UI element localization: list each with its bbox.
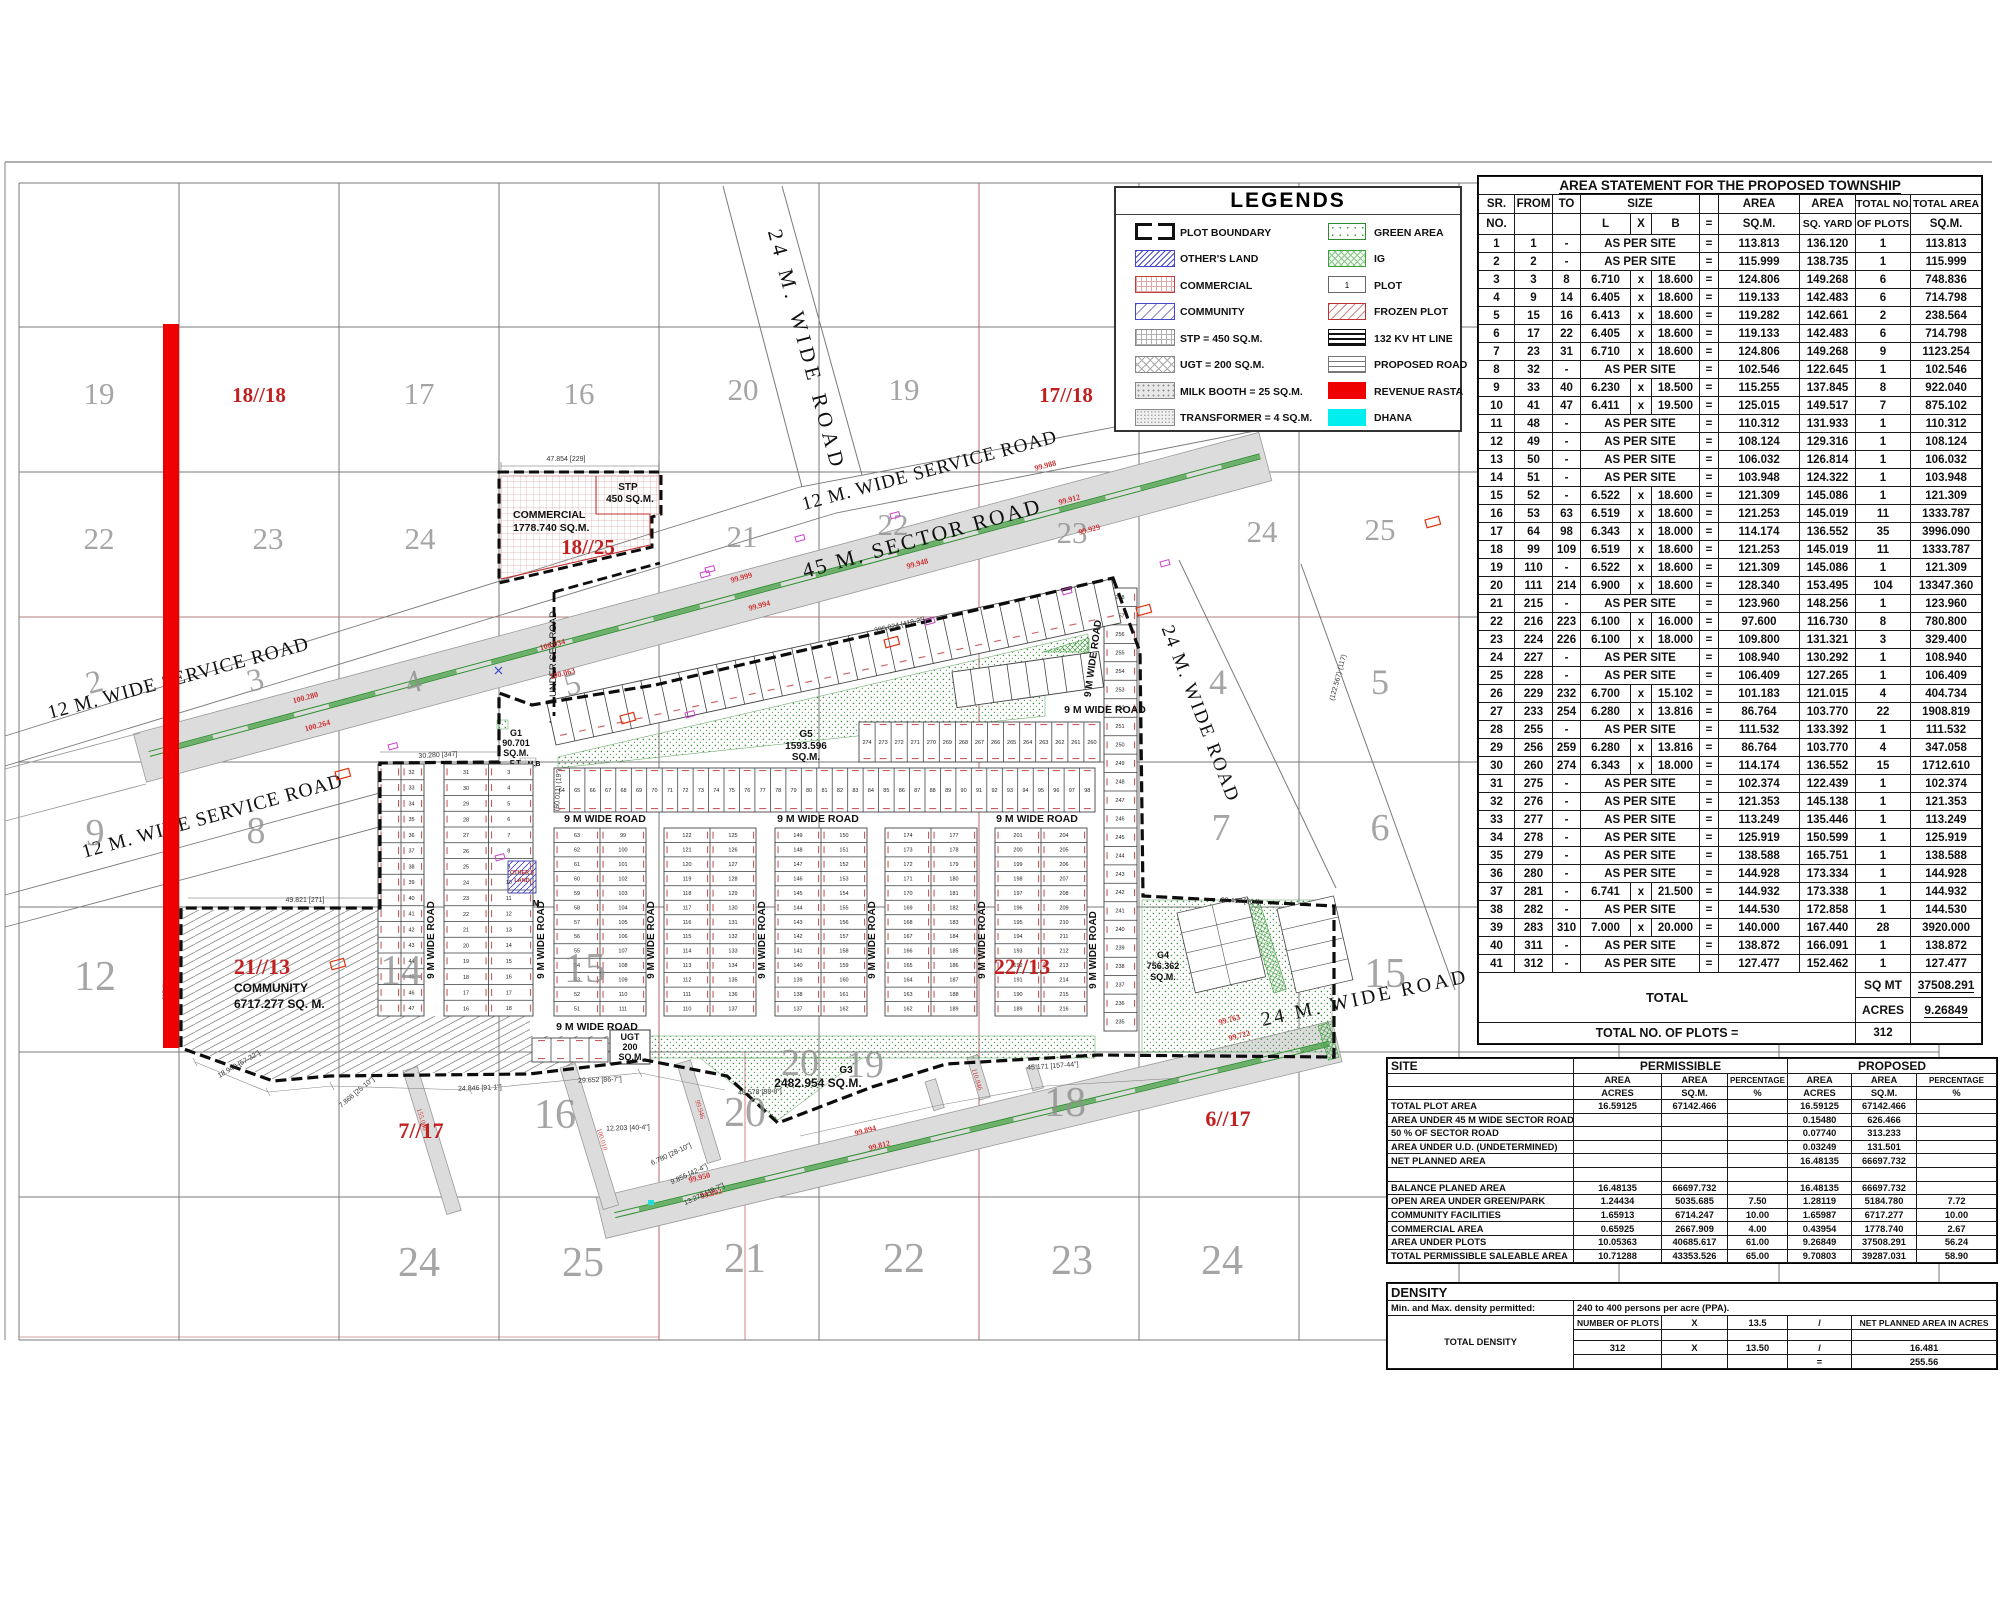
svg-text:87: 87 xyxy=(914,788,920,794)
svg-text:147: 147 xyxy=(793,862,802,868)
svg-text:18: 18 xyxy=(463,975,469,981)
svg-text:138: 138 xyxy=(793,992,802,998)
svg-text:204: 204 xyxy=(1059,833,1068,839)
svg-text:9 M WIDE ROAD: 9 M WIDE ROAD xyxy=(757,901,768,979)
svg-text:247: 247 xyxy=(1115,798,1124,804)
svg-text:214: 214 xyxy=(1059,978,1068,984)
svg-text:107: 107 xyxy=(618,949,627,955)
svg-text:37: 37 xyxy=(408,849,414,855)
svg-text:20: 20 xyxy=(728,372,759,407)
svg-text:58: 58 xyxy=(574,905,580,911)
svg-text:198: 198 xyxy=(1013,876,1022,882)
svg-text:173: 173 xyxy=(903,847,912,853)
svg-text:24: 24 xyxy=(1201,1238,1243,1284)
svg-text:196: 196 xyxy=(1013,905,1022,911)
svg-text:22: 22 xyxy=(84,521,115,556)
svg-text:6.780 [28-10"]: 6.780 [28-10"] xyxy=(650,1142,693,1167)
svg-text:63: 63 xyxy=(574,833,580,839)
svg-text:35: 35 xyxy=(408,817,414,823)
svg-text:139: 139 xyxy=(793,978,802,984)
svg-text:21: 21 xyxy=(724,1236,766,1282)
svg-text:209: 209 xyxy=(1059,905,1068,911)
svg-text:266: 266 xyxy=(991,740,1000,746)
svg-text:261: 261 xyxy=(1071,740,1080,746)
svg-text:12 M. WIDE SERVICE ROAD: 12 M. WIDE SERVICE ROAD xyxy=(80,771,346,863)
svg-text:110: 110 xyxy=(683,1007,692,1013)
svg-text:132: 132 xyxy=(728,934,737,940)
svg-text:6717.277 SQ. M.: 6717.277 SQ. M. xyxy=(234,997,325,1011)
svg-text:62: 62 xyxy=(574,847,580,853)
svg-text:66: 66 xyxy=(590,788,596,794)
svg-text:9 M WIDE ROAD: 9 M WIDE ROAD xyxy=(646,901,657,979)
svg-text:29.652 [86-7"]: 29.652 [86-7"] xyxy=(578,1076,622,1085)
svg-text:69: 69 xyxy=(636,788,642,794)
svg-text:22: 22 xyxy=(463,912,469,918)
svg-text:14: 14 xyxy=(380,948,422,994)
svg-text:9 M WIDE ROAD: 9 M WIDE ROAD xyxy=(867,901,878,979)
svg-text:272: 272 xyxy=(895,740,904,746)
svg-text:270: 270 xyxy=(927,740,936,746)
svg-text:38: 38 xyxy=(408,864,414,870)
svg-text:11: 11 xyxy=(506,896,512,902)
svg-text:249: 249 xyxy=(1115,761,1124,767)
svg-text:115: 115 xyxy=(683,934,692,940)
svg-text:SQ.M.: SQ.M. xyxy=(1150,972,1176,982)
svg-text:187: 187 xyxy=(949,978,958,984)
svg-text:153: 153 xyxy=(839,876,848,882)
svg-text:111: 111 xyxy=(619,1007,627,1013)
svg-text:146: 146 xyxy=(793,876,802,882)
svg-text:UGT: UGT xyxy=(621,1032,641,1042)
svg-text:29: 29 xyxy=(463,802,469,808)
svg-text:126: 126 xyxy=(728,847,737,853)
svg-text:1593.596: 1593.596 xyxy=(785,741,827,752)
svg-text:156: 156 xyxy=(839,920,848,926)
svg-text:95: 95 xyxy=(1038,788,1044,794)
svg-text:COMMUNITY: COMMUNITY xyxy=(234,981,308,995)
svg-text:SQ.M.: SQ.M. xyxy=(792,752,821,763)
svg-text:189: 189 xyxy=(1013,1007,1022,1013)
svg-text:120: 120 xyxy=(682,862,691,868)
svg-text:168: 168 xyxy=(903,920,912,926)
svg-text:183: 183 xyxy=(949,920,958,926)
svg-text:19: 19 xyxy=(846,1044,884,1086)
svg-text:248: 248 xyxy=(1115,780,1124,786)
svg-text:8: 8 xyxy=(247,810,266,852)
svg-text:9 M WIDE ROAD: 9 M WIDE ROAD xyxy=(777,813,859,825)
svg-text:136: 136 xyxy=(728,992,737,998)
svg-text:185: 185 xyxy=(949,949,958,955)
svg-text:6: 6 xyxy=(1371,807,1390,849)
svg-text:78: 78 xyxy=(775,788,781,794)
svg-text:1778.740 SQ.M.: 1778.740 SQ.M. xyxy=(513,522,590,534)
svg-text:144: 144 xyxy=(793,905,802,911)
svg-text:180: 180 xyxy=(949,876,958,882)
svg-text:51: 51 xyxy=(574,1007,580,1013)
svg-text:110: 110 xyxy=(619,992,628,998)
svg-text:74: 74 xyxy=(713,788,719,794)
svg-text:47.854 [229]: 47.854 [229] xyxy=(547,456,586,463)
svg-text:65: 65 xyxy=(574,788,580,794)
svg-text:17: 17 xyxy=(463,991,469,997)
svg-text:206: 206 xyxy=(1059,862,1068,868)
svg-text:85: 85 xyxy=(883,788,889,794)
svg-text:171: 171 xyxy=(903,876,912,882)
svg-text:98: 98 xyxy=(1084,788,1090,794)
svg-text:STP: STP xyxy=(618,482,638,493)
svg-text:268: 268 xyxy=(959,740,968,746)
svg-text:12.203 [40-4"]: 12.203 [40-4"] xyxy=(606,1124,650,1133)
svg-text:20: 20 xyxy=(724,1090,766,1136)
svg-text:141: 141 xyxy=(793,949,802,955)
svg-text:274: 274 xyxy=(862,740,871,746)
svg-text:162: 162 xyxy=(903,1007,912,1013)
svg-text:15: 15 xyxy=(506,959,512,965)
svg-text:152: 152 xyxy=(839,862,848,868)
svg-text:90.701: 90.701 xyxy=(502,738,530,748)
svg-text:24: 24 xyxy=(1247,514,1279,549)
svg-text:18//18: 18//18 xyxy=(232,383,286,407)
svg-text:4: 4 xyxy=(507,786,510,792)
svg-text:102: 102 xyxy=(618,876,627,882)
svg-text:129: 129 xyxy=(728,891,737,897)
svg-text:167: 167 xyxy=(903,934,912,940)
svg-text:6: 6 xyxy=(507,817,510,823)
svg-text:47: 47 xyxy=(408,1006,414,1012)
svg-text:269: 269 xyxy=(943,740,952,746)
svg-text:7.866 [25-10"]: 7.866 [25-10"] xyxy=(338,1076,376,1110)
svg-text:114: 114 xyxy=(683,949,692,955)
svg-text:83: 83 xyxy=(852,788,858,794)
svg-text:86: 86 xyxy=(899,788,905,794)
svg-text:57: 57 xyxy=(574,920,580,926)
svg-text:125: 125 xyxy=(728,833,737,839)
svg-text:142: 142 xyxy=(793,934,802,940)
svg-text:154: 154 xyxy=(839,891,848,897)
svg-text:91: 91 xyxy=(976,788,982,794)
svg-text:756.362: 756.362 xyxy=(1147,961,1180,971)
svg-text:24 M. WIDE ROAD: 24 M. WIDE ROAD xyxy=(1157,623,1244,806)
svg-text:262: 262 xyxy=(1055,740,1064,746)
svg-text:75: 75 xyxy=(729,788,735,794)
svg-text:149: 149 xyxy=(793,833,802,839)
svg-text:150: 150 xyxy=(839,833,848,839)
svg-text:9 M WIDE ROAD: 9 M WIDE ROAD xyxy=(426,901,437,979)
svg-text:105: 105 xyxy=(618,920,627,926)
svg-text:24: 24 xyxy=(398,1240,440,1286)
svg-text:5: 5 xyxy=(507,801,510,807)
svg-text:143: 143 xyxy=(793,920,802,926)
svg-text:16: 16 xyxy=(506,975,512,981)
svg-text:166: 166 xyxy=(903,949,912,955)
svg-text:68: 68 xyxy=(620,788,626,794)
svg-text:112: 112 xyxy=(683,978,692,984)
svg-text:42: 42 xyxy=(408,927,414,933)
svg-text:208: 208 xyxy=(1059,891,1068,897)
svg-text:9 M WIDE ROAD: 9 M WIDE ROAD xyxy=(1088,911,1099,989)
svg-text:148: 148 xyxy=(793,847,802,853)
svg-text:179: 179 xyxy=(949,862,958,868)
svg-text:106: 106 xyxy=(618,934,627,940)
svg-text:9 M WIDE ROAD: 9 M WIDE ROAD xyxy=(556,1021,638,1033)
svg-text:19: 19 xyxy=(889,372,920,407)
svg-text:52: 52 xyxy=(574,992,580,998)
svg-text:101: 101 xyxy=(618,862,627,868)
svg-text:9 M WIDE ROAD: 9 M WIDE ROAD xyxy=(996,813,1078,825)
svg-text:16: 16 xyxy=(534,1092,576,1138)
svg-text:137: 137 xyxy=(793,1007,802,1013)
svg-text:273: 273 xyxy=(879,740,888,746)
svg-text:12: 12 xyxy=(506,912,512,918)
svg-text:263: 263 xyxy=(1039,740,1048,746)
svg-text:93: 93 xyxy=(1007,788,1013,794)
svg-text:G1: G1 xyxy=(510,728,522,738)
svg-text:260: 260 xyxy=(1087,740,1096,746)
svg-text:18: 18 xyxy=(1044,1080,1086,1126)
svg-text:267: 267 xyxy=(975,740,984,746)
svg-text:128: 128 xyxy=(728,876,737,882)
svg-text:9 M WIDE ROAD: 9 M WIDE ROAD xyxy=(1064,704,1146,716)
svg-text:239: 239 xyxy=(1115,946,1124,952)
svg-text:265: 265 xyxy=(1007,740,1016,746)
svg-text:164: 164 xyxy=(903,978,912,984)
svg-text:67: 67 xyxy=(605,788,611,794)
svg-text:127: 127 xyxy=(728,862,737,868)
svg-text:SQ.M.: SQ.M. xyxy=(503,748,529,758)
svg-text:33: 33 xyxy=(408,786,414,792)
svg-text:16: 16 xyxy=(564,376,595,411)
svg-text:LAND: LAND xyxy=(514,878,529,884)
svg-text:34: 34 xyxy=(408,801,414,807)
svg-text:96: 96 xyxy=(1053,788,1059,794)
svg-text:158: 158 xyxy=(839,949,848,955)
svg-text:9 M WIDE ROAD: 9 M WIDE ROAD xyxy=(564,813,646,825)
svg-text:4: 4 xyxy=(1209,662,1227,702)
svg-text:24.846 [91-1"]: 24.846 [91-1"] xyxy=(458,1084,502,1093)
svg-text:24: 24 xyxy=(405,521,437,556)
svg-text:25: 25 xyxy=(562,1240,604,1286)
svg-text:160: 160 xyxy=(839,978,848,984)
svg-text:18//25: 18//25 xyxy=(561,535,615,559)
svg-text:189: 189 xyxy=(949,1007,958,1013)
svg-text:195: 195 xyxy=(1013,920,1022,926)
svg-text:245: 245 xyxy=(1115,835,1124,841)
svg-text:236: 236 xyxy=(1115,1001,1124,1007)
svg-text:26: 26 xyxy=(463,849,469,855)
svg-text:16: 16 xyxy=(463,1006,469,1012)
svg-text:76: 76 xyxy=(744,788,750,794)
svg-text:28: 28 xyxy=(463,817,469,823)
svg-text:207: 207 xyxy=(1059,876,1068,882)
svg-text:15: 15 xyxy=(1364,951,1406,997)
svg-text:(122.567) (117): (122.567) (117) xyxy=(1329,654,1348,702)
svg-text:255: 255 xyxy=(1115,650,1124,656)
svg-text:80: 80 xyxy=(806,788,812,794)
svg-text:G4: G4 xyxy=(1157,950,1169,960)
svg-text:215: 215 xyxy=(1059,992,1068,998)
svg-text:210: 210 xyxy=(1059,920,1068,926)
svg-text:169: 169 xyxy=(903,905,912,911)
svg-text:9 M WIDE ROAD: 9 M WIDE ROAD xyxy=(536,901,547,979)
svg-text:72: 72 xyxy=(682,788,688,794)
svg-text:40: 40 xyxy=(408,896,414,902)
svg-text:250: 250 xyxy=(1115,743,1124,749)
svg-text:165: 165 xyxy=(903,963,912,969)
svg-text:COMMERCIAL: COMMERCIAL xyxy=(513,509,586,521)
svg-text:213: 213 xyxy=(1059,963,1068,969)
svg-text:140: 140 xyxy=(793,963,802,969)
svg-text:20: 20 xyxy=(463,943,469,949)
svg-text:60: 60 xyxy=(574,876,580,882)
svg-text:12: 12 xyxy=(74,954,116,1000)
svg-text:17: 17 xyxy=(506,990,512,996)
svg-text:23: 23 xyxy=(463,896,469,902)
svg-text:92: 92 xyxy=(991,788,997,794)
svg-text:201: 201 xyxy=(1013,833,1022,839)
svg-text:23: 23 xyxy=(1051,1238,1093,1284)
svg-text:24 M. WIDE ROAD: 24 M. WIDE ROAD xyxy=(763,227,851,474)
svg-text:241: 241 xyxy=(1115,909,1124,915)
svg-text:205: 205 xyxy=(1059,847,1068,853)
svg-text:14: 14 xyxy=(506,943,512,949)
svg-text:237: 237 xyxy=(1115,982,1124,988)
svg-text:9: 9 xyxy=(86,812,105,854)
svg-text:121: 121 xyxy=(682,847,691,853)
svg-text:18: 18 xyxy=(506,1006,512,1012)
svg-text:200: 200 xyxy=(1013,847,1022,853)
svg-text:212: 212 xyxy=(1059,949,1068,955)
svg-text:251: 251 xyxy=(1115,724,1124,730)
svg-text:25: 25 xyxy=(463,865,469,871)
svg-text:186: 186 xyxy=(949,963,958,969)
svg-text:109: 109 xyxy=(618,978,627,984)
svg-text:122: 122 xyxy=(682,833,691,839)
svg-text:21: 21 xyxy=(463,928,469,934)
svg-text:G5: G5 xyxy=(799,729,813,740)
svg-text:17//18: 17//18 xyxy=(1039,383,1093,407)
svg-text:45.171 [157-44"]: 45.171 [157-44"] xyxy=(1027,1061,1079,1072)
svg-text:23: 23 xyxy=(253,521,284,556)
svg-text:181: 181 xyxy=(949,891,958,897)
svg-text:90: 90 xyxy=(961,788,967,794)
svg-text:103: 103 xyxy=(618,891,627,897)
svg-text:170: 170 xyxy=(903,891,912,897)
svg-text:238: 238 xyxy=(1115,964,1124,970)
svg-text:32: 32 xyxy=(408,770,414,776)
svg-text:36: 36 xyxy=(408,833,414,839)
svg-text:194: 194 xyxy=(1013,934,1022,940)
svg-text:117: 117 xyxy=(683,905,692,911)
svg-text:130: 130 xyxy=(728,905,737,911)
svg-text:79: 79 xyxy=(791,788,797,794)
svg-text:24: 24 xyxy=(463,880,469,886)
svg-text:243: 243 xyxy=(1115,872,1124,878)
svg-text:253: 253 xyxy=(1115,687,1124,693)
svg-text:77: 77 xyxy=(760,788,766,794)
svg-text:15: 15 xyxy=(564,946,606,992)
svg-text:30: 30 xyxy=(463,786,469,792)
svg-text:100: 100 xyxy=(618,847,627,853)
svg-text:172: 172 xyxy=(903,862,912,868)
svg-text:84: 84 xyxy=(868,788,874,794)
svg-text:113: 113 xyxy=(683,963,692,969)
svg-text:5: 5 xyxy=(1371,662,1389,702)
svg-text:31: 31 xyxy=(463,770,469,776)
svg-text:94: 94 xyxy=(1022,788,1028,794)
svg-text:27: 27 xyxy=(463,833,469,839)
svg-text:151: 151 xyxy=(839,847,848,853)
svg-text:25: 25 xyxy=(1365,512,1396,547)
svg-text:116: 116 xyxy=(683,920,692,926)
svg-text:21: 21 xyxy=(727,519,758,554)
svg-text:19: 19 xyxy=(463,959,469,965)
svg-text:240: 240 xyxy=(1115,927,1124,933)
svg-text:184: 184 xyxy=(949,934,958,940)
svg-text:161: 161 xyxy=(839,992,848,998)
svg-text:134: 134 xyxy=(728,963,737,969)
svg-text:7: 7 xyxy=(1212,807,1231,849)
svg-text:89: 89 xyxy=(945,788,951,794)
svg-text:30.280 [347]: 30.280 [347] xyxy=(418,751,457,760)
svg-text:137: 137 xyxy=(728,1007,737,1013)
svg-text:216: 216 xyxy=(1059,1007,1068,1013)
svg-text:162: 162 xyxy=(839,1007,848,1013)
svg-text:178: 178 xyxy=(949,847,958,853)
svg-text:13: 13 xyxy=(506,927,512,933)
svg-text:22: 22 xyxy=(883,1236,925,1282)
svg-text:22//13: 22//13 xyxy=(994,954,1050,979)
svg-text:119: 119 xyxy=(683,876,692,882)
svg-text:111: 111 xyxy=(683,992,691,998)
svg-text:70: 70 xyxy=(651,788,657,794)
svg-text:159: 159 xyxy=(839,963,848,969)
svg-text:22: 22 xyxy=(878,507,909,542)
svg-text:118: 118 xyxy=(683,891,692,897)
svg-text:20: 20 xyxy=(781,1042,819,1084)
svg-text:41: 41 xyxy=(408,912,414,918)
svg-text:264: 264 xyxy=(1023,740,1032,746)
svg-text:182: 182 xyxy=(949,905,958,911)
svg-text:271: 271 xyxy=(911,740,920,746)
svg-text:3: 3 xyxy=(507,770,510,776)
svg-text:81: 81 xyxy=(821,788,827,794)
svg-text:244: 244 xyxy=(1115,853,1124,859)
svg-text:235: 235 xyxy=(1115,1019,1124,1025)
svg-text:197: 197 xyxy=(1013,891,1022,897)
svg-text:246: 246 xyxy=(1115,816,1124,822)
svg-text:108: 108 xyxy=(618,963,627,969)
svg-text:OTHER'S: OTHER'S xyxy=(510,870,535,876)
svg-text:254: 254 xyxy=(1115,669,1124,675)
svg-text:163: 163 xyxy=(903,992,912,998)
svg-text:211: 211 xyxy=(1060,934,1069,940)
svg-text:39: 39 xyxy=(408,880,414,886)
svg-text:177: 177 xyxy=(949,833,958,839)
svg-text:104: 104 xyxy=(618,905,627,911)
svg-text:6//17: 6//17 xyxy=(1205,1106,1250,1131)
svg-text:145: 145 xyxy=(793,891,802,897)
svg-text:82: 82 xyxy=(837,788,843,794)
svg-text:131: 131 xyxy=(728,920,737,926)
svg-text:73: 73 xyxy=(698,788,704,794)
svg-text:199: 199 xyxy=(1013,862,1022,868)
svg-text:8: 8 xyxy=(507,849,510,855)
svg-text:88: 88 xyxy=(930,788,936,794)
svg-text:97: 97 xyxy=(1069,788,1075,794)
svg-text:99: 99 xyxy=(620,833,626,839)
svg-text:155: 155 xyxy=(839,905,848,911)
svg-text:190: 190 xyxy=(1013,992,1022,998)
